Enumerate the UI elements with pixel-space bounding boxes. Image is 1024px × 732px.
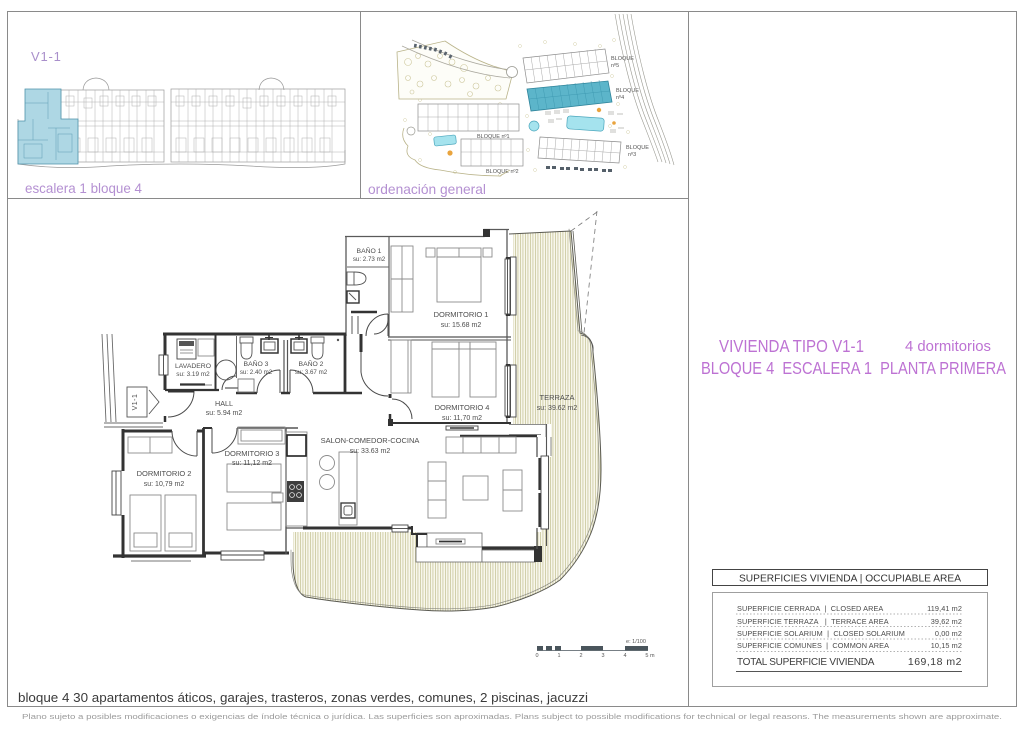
svg-text:BAÑO 1: BAÑO 1: [357, 246, 382, 255]
svg-text:su: 15.68 m2: su: 15.68 m2: [441, 322, 482, 329]
svg-text:su: 33.63 m2: su: 33.63 m2: [350, 448, 391, 455]
svg-text:e: 1/100: e: 1/100: [626, 639, 646, 645]
svg-text:4 dormitorios: 4 dormitorios: [905, 339, 991, 355]
svg-text:nº5: nº5: [611, 62, 619, 69]
svg-text:DORMITORIO 1: DORMITORIO 1: [434, 310, 489, 319]
svg-text:V1-1: V1-1: [132, 394, 139, 411]
svg-text:0,00 m2: 0,00 m2: [935, 629, 962, 638]
svg-text:TERRAZA: TERRAZA: [539, 393, 574, 402]
svg-text:SALON-COMEDOR-COCINA: SALON-COMEDOR-COCINA: [321, 436, 420, 445]
svg-text:10,15 m2: 10,15 m2: [931, 641, 962, 650]
svg-text:BAÑO 3: BAÑO 3: [244, 359, 269, 368]
svg-text:bloque 4 30 apartamentos ático: bloque 4 30 apartamentos áticos, garajes…: [18, 690, 588, 705]
svg-text:SUPERFICIE COMUNES | COMMON: SUPERFICIE COMUNES | COMMON AREA: [737, 641, 889, 650]
svg-text:su: 3.67 m2: su: 3.67 m2: [295, 369, 328, 376]
svg-text:SUPERFICIE TERRAZA | TERRAC: SUPERFICIE TERRAZA | TERRACE AREA: [737, 617, 889, 626]
svg-text:DORMITORIO 3: DORMITORIO 3: [225, 449, 280, 458]
svg-text:2: 2: [579, 653, 582, 659]
svg-text:V1-1: V1-1: [31, 49, 62, 64]
svg-text:BLOQUE nº2: BLOQUE nº2: [486, 168, 519, 175]
svg-text:TOTAL SUPERFICIE VIVIENDA: TOTAL SUPERFICIE VIVIENDA: [737, 657, 875, 668]
svg-text:169,18 m2: 169,18 m2: [908, 656, 962, 668]
svg-text:HALL: HALL: [215, 399, 233, 408]
svg-text:su: 11,12 m2: su: 11,12 m2: [232, 460, 272, 467]
svg-text:4: 4: [623, 653, 626, 659]
svg-text:VIVIENDA TIPO V1-1: VIVIENDA TIPO V1-1: [719, 336, 864, 356]
svg-text:nº4: nº4: [616, 94, 624, 101]
svg-text:su: 5.94 m2: su: 5.94 m2: [206, 410, 243, 417]
svg-text:su: 11,70 m2: su: 11,70 m2: [442, 415, 482, 422]
svg-text:LAVADERO: LAVADERO: [175, 363, 211, 370]
svg-text:su: 2.73 m2: su: 2.73 m2: [353, 256, 386, 263]
svg-text:SUPERFICIE CERRADA | CLOSED: SUPERFICIE CERRADA | CLOSED AREA: [737, 604, 883, 613]
svg-text:BLOQUE: BLOQUE: [626, 145, 649, 151]
svg-text:SUPERFICIES VIVIENDA | OCCUPIA: SUPERFICIES VIVIENDA | OCCUPIABLE AREA: [739, 573, 961, 585]
svg-text:su: 2.40 m2: su: 2.40 m2: [240, 369, 273, 376]
svg-text:su: 3.19 m2: su: 3.19 m2: [176, 371, 210, 378]
svg-text:5 m: 5 m: [645, 653, 655, 659]
svg-text:BAÑO 2: BAÑO 2: [299, 359, 324, 368]
svg-text:BLOQUE: BLOQUE: [611, 56, 634, 62]
svg-text:39,62 m2: 39,62 m2: [931, 617, 962, 626]
svg-text:ordenación general: ordenación general: [368, 181, 486, 197]
svg-text:BLOQUE 4 ESCALERA 1 PLANTA P: BLOQUE 4 ESCALERA 1 PLANTA PRIMERA: [701, 358, 1006, 378]
svg-text:119,41 m2: 119,41 m2: [927, 604, 962, 613]
svg-text:Plano sujeto a posibles modifi: Plano sujeto a posibles modificaciones o…: [22, 712, 1002, 721]
svg-text:DORMITORIO 4: DORMITORIO 4: [435, 403, 490, 412]
svg-text:escalera 1 bloque 4: escalera 1 bloque 4: [25, 180, 142, 196]
svg-text:nº3: nº3: [628, 151, 636, 158]
svg-text:su: 10,79 m2: su: 10,79 m2: [144, 481, 185, 488]
svg-text:su: 39.62 m2: su: 39.62 m2: [537, 405, 578, 412]
svg-text:1: 1: [557, 653, 560, 659]
svg-text:3: 3: [601, 653, 604, 659]
svg-text:DORMITORIO 2: DORMITORIO 2: [137, 469, 192, 478]
svg-text:0: 0: [535, 653, 538, 659]
svg-text:SUPERFICIE SOLARIUM | CLOSED: SUPERFICIE SOLARIUM | CLOSED SOLARIUM: [737, 629, 905, 638]
